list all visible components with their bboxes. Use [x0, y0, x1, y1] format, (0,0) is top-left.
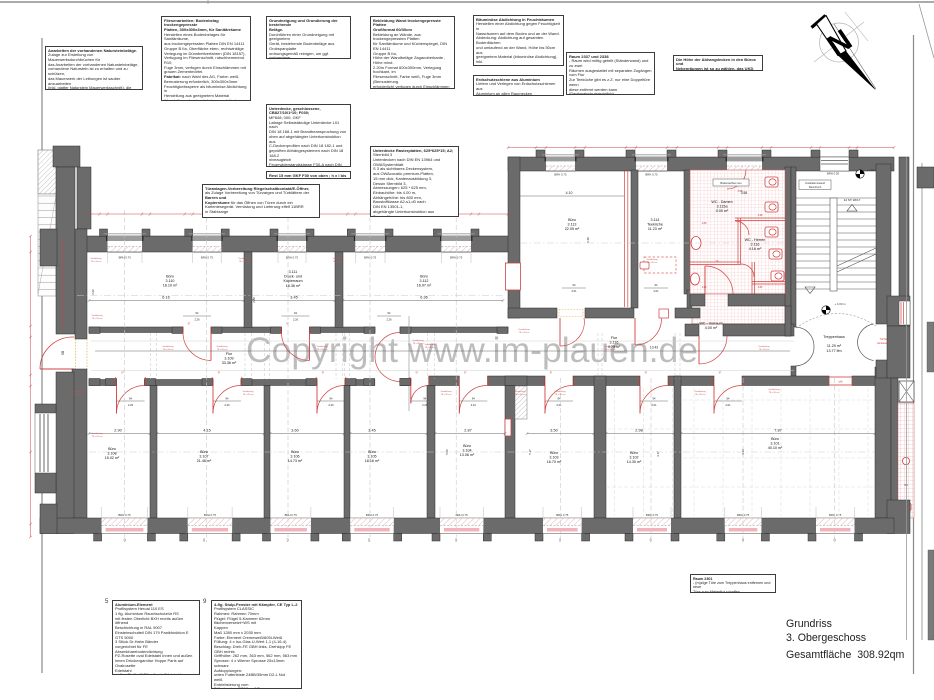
svg-text:3.45: 3.45: [290, 296, 297, 300]
svg-text:94: 94: [655, 283, 658, 287]
svg-text:94: 94: [573, 283, 576, 287]
svg-text:79 x 20 cm: 79 x 20 cm: [769, 392, 780, 394]
svg-text:3.113: 3.113: [568, 223, 577, 227]
svg-text:3.114: 3.114: [651, 218, 660, 222]
svg-text:Flur: Flur: [226, 352, 233, 356]
svg-text:Vertäfelung: Vertäfelung: [316, 345, 328, 348]
svg-text:15.02 m²: 15.02 m²: [105, 456, 120, 460]
svg-text:79 x 20 cm: 79 x 20 cm: [217, 349, 228, 351]
svg-text:21.46 m²: 21.46 m²: [197, 459, 212, 463]
svg-text:6.36: 6.36: [420, 296, 427, 300]
svg-text:2.01: 2.01: [571, 289, 577, 293]
svg-text:Vertäfelung: Vertäfelung: [646, 258, 658, 261]
svg-text:Kopierraum: Kopierraum: [283, 279, 302, 283]
svg-text:Vertäfelung: Vertäfelung: [162, 345, 174, 348]
svg-text:3.115a: 3.115a: [716, 205, 728, 209]
svg-text:79 x 20 cm: 79 x 20 cm: [163, 349, 174, 351]
svg-text:22.09 m²: 22.09 m²: [565, 227, 580, 231]
svg-text:5.06: 5.06: [445, 449, 449, 455]
svg-text:2.88: 2.88: [252, 297, 256, 303]
svg-text:3.105: 3.105: [367, 455, 376, 459]
svg-text:3.116: 3.116: [610, 341, 619, 345]
svg-text:79 x 20 cm: 79 x 20 cm: [425, 347, 436, 349]
svg-text:3.50: 3.50: [550, 429, 557, 433]
svg-text:Vertäfelung: Vertäfelung: [242, 390, 254, 393]
svg-text:2.01: 2.01: [653, 289, 659, 293]
svg-text:Teeküche: Teeküche: [647, 223, 663, 227]
svg-text:16.97 m²: 16.97 m²: [417, 284, 432, 288]
svg-text:5.38: 5.38: [586, 237, 590, 243]
svg-text:79 x 20 cm: 79 x 20 cm: [441, 394, 452, 396]
svg-text:Vertäfelung: Vertäfelung: [518, 328, 530, 331]
svg-text:Vertäfelung: Vertäfelung: [768, 388, 780, 391]
svg-text:Vertäfelung: Vertäfelung: [216, 345, 228, 348]
svg-text:3.107: 3.107: [199, 455, 208, 459]
svg-text:3.116: 3.116: [751, 243, 760, 247]
svg-text:18.16 m²: 18.16 m²: [365, 459, 380, 463]
svg-text:Büro: Büro: [108, 447, 116, 451]
svg-text:Büro: Büro: [630, 451, 638, 455]
svg-text:79 x 20 cm: 79 x 20 cm: [413, 343, 424, 345]
svg-text:3.112: 3.112: [420, 279, 429, 283]
svg-text:2.90: 2.90: [114, 429, 121, 433]
svg-text:3.13: 3.13: [741, 449, 745, 455]
svg-text:16.70 m²: 16.70 m²: [547, 460, 562, 464]
svg-text:33.36 m²: 33.36 m²: [222, 361, 237, 365]
svg-text:Büro: Büro: [568, 218, 576, 222]
svg-text:0.00 m²: 0.00 m²: [716, 209, 729, 213]
svg-text:14.30 m²: 14.30 m²: [627, 460, 642, 464]
svg-text:79 x 20 cm: 79 x 20 cm: [91, 261, 102, 263]
svg-text:Vertäfelung: Vertäfelung: [91, 432, 103, 435]
svg-text:4.15: 4.15: [203, 429, 210, 433]
svg-text:13.77 lfm: 13.77 lfm: [826, 349, 841, 353]
svg-text:Büro: Büro: [463, 444, 471, 448]
svg-text:6.16: 6.16: [162, 296, 169, 300]
svg-text:Vertäfelung: Vertäfelung: [424, 343, 436, 346]
svg-text:79 x 20 cm: 79 x 20 cm: [759, 349, 770, 351]
svg-text:Vertäfelung: Vertäfelung: [332, 257, 344, 260]
svg-text:Vertäfelung: Vertäfelung: [554, 390, 566, 393]
svg-text:3.104: 3.104: [462, 449, 471, 453]
svg-text:Vertäfelung: Vertäfelung: [758, 345, 770, 348]
svg-text:Vertäfelung: Vertäfelung: [514, 390, 526, 393]
svg-text:10.43: 10.43: [650, 346, 658, 350]
svg-text:3.106: 3.106: [290, 455, 299, 459]
svg-text:79 x 20 cm: 79 x 20 cm: [515, 394, 526, 396]
svg-text:3.45: 3.45: [368, 429, 375, 433]
svg-text:Büro: Büro: [291, 450, 299, 454]
svg-text:Vertäfelung: Vertäfelung: [91, 314, 103, 317]
svg-text:2.60: 2.60: [91, 289, 95, 295]
svg-text:4.00 m²: 4.00 m²: [705, 326, 718, 330]
svg-text:4.16 m²: 4.16 m²: [749, 247, 762, 251]
svg-text:3.101: 3.101: [770, 442, 779, 446]
svg-text:4.10: 4.10: [566, 191, 573, 195]
svg-text:3.103: 3.103: [549, 456, 558, 460]
svg-text:79 x 20 cm: 79 x 20 cm: [317, 349, 328, 351]
svg-text:Vertäfelung: Vertäfelung: [412, 339, 424, 342]
svg-text:Büro: Büro: [420, 275, 428, 279]
svg-text:Büro: Büro: [200, 450, 208, 454]
svg-text:13.06 m²: 13.06 m²: [460, 453, 475, 457]
svg-text:16.36 m²: 16.36 m²: [286, 284, 301, 288]
svg-text:Büro: Büro: [550, 451, 558, 455]
svg-text:11.29 m²: 11.29 m²: [827, 344, 842, 348]
svg-text:11.23 m²: 11.23 m²: [648, 227, 663, 231]
svg-text:2.98: 2.98: [635, 429, 642, 433]
svg-text:79 x 20 cm: 79 x 20 cm: [695, 394, 706, 396]
svg-text:7.87: 7.87: [774, 429, 781, 433]
svg-text:79 x 20 cm: 79 x 20 cm: [605, 349, 616, 351]
svg-text:Druck- und: Druck- und: [284, 275, 302, 279]
svg-text:79 x 20 cm: 79 x 20 cm: [92, 318, 103, 320]
svg-text:2.87: 2.87: [464, 429, 471, 433]
svg-text:3.102: 3.102: [629, 456, 638, 460]
svg-text:79 x 20 cm: 79 x 20 cm: [73, 394, 84, 396]
svg-text:5.17: 5.17: [528, 449, 532, 455]
svg-text:79 x 20 cm: 79 x 20 cm: [92, 436, 103, 438]
svg-text:Treppenhaus: Treppenhaus: [823, 335, 845, 339]
svg-text:79 x 20 cm: 79 x 20 cm: [647, 262, 658, 264]
svg-text:Vertäfelung: Vertäfelung: [72, 390, 84, 393]
svg-text:4.73 m²: 4.73 m²: [608, 345, 621, 349]
svg-text:3.108: 3.108: [107, 452, 116, 456]
svg-text:14.73 m²: 14.73 m²: [288, 459, 303, 463]
svg-text:Büro: Büro: [166, 275, 174, 279]
svg-text:Vertäfelung: Vertäfelung: [694, 390, 706, 393]
svg-text:79 x 20 cm: 79 x 20 cm: [239, 261, 250, 263]
svg-text:3.110: 3.110: [166, 279, 175, 283]
svg-text:79 x 20 cm: 79 x 20 cm: [555, 394, 566, 396]
svg-text:79 x 20 cm: 79 x 20 cm: [243, 394, 254, 396]
svg-text:3.58: 3.58: [741, 191, 748, 195]
svg-text:Flur: Flur: [611, 336, 618, 340]
svg-text:WC - Herren: WC - Herren: [745, 238, 766, 242]
svg-text:3.111: 3.111: [289, 270, 298, 274]
svg-text:Büro: Büro: [368, 450, 376, 454]
svg-text:Vertäfelung: Vertäfelung: [440, 390, 452, 393]
svg-text:18.10 m²: 18.10 m²: [163, 284, 178, 288]
svg-text:SB: SB: [61, 351, 65, 355]
svg-text:Vertäfelung: Vertäfelung: [90, 257, 102, 260]
svg-text:Büro: Büro: [771, 437, 779, 441]
svg-text:3.60: 3.60: [291, 429, 298, 433]
svg-text:Vertäfelung: Vertäfelung: [238, 257, 250, 260]
svg-text:3.109: 3.109: [224, 357, 233, 361]
svg-text:79 x 20 cm: 79 x 20 cm: [519, 332, 530, 334]
svg-text:WC - Damen: WC - Damen: [711, 200, 732, 204]
svg-text:79 x 20 cm: 79 x 20 cm: [333, 261, 344, 263]
svg-text:40.10 m²: 40.10 m²: [768, 446, 783, 450]
svg-text:WC - Vorraum: WC - Vorraum: [699, 322, 722, 326]
svg-text:3.17: 3.17: [656, 451, 660, 457]
